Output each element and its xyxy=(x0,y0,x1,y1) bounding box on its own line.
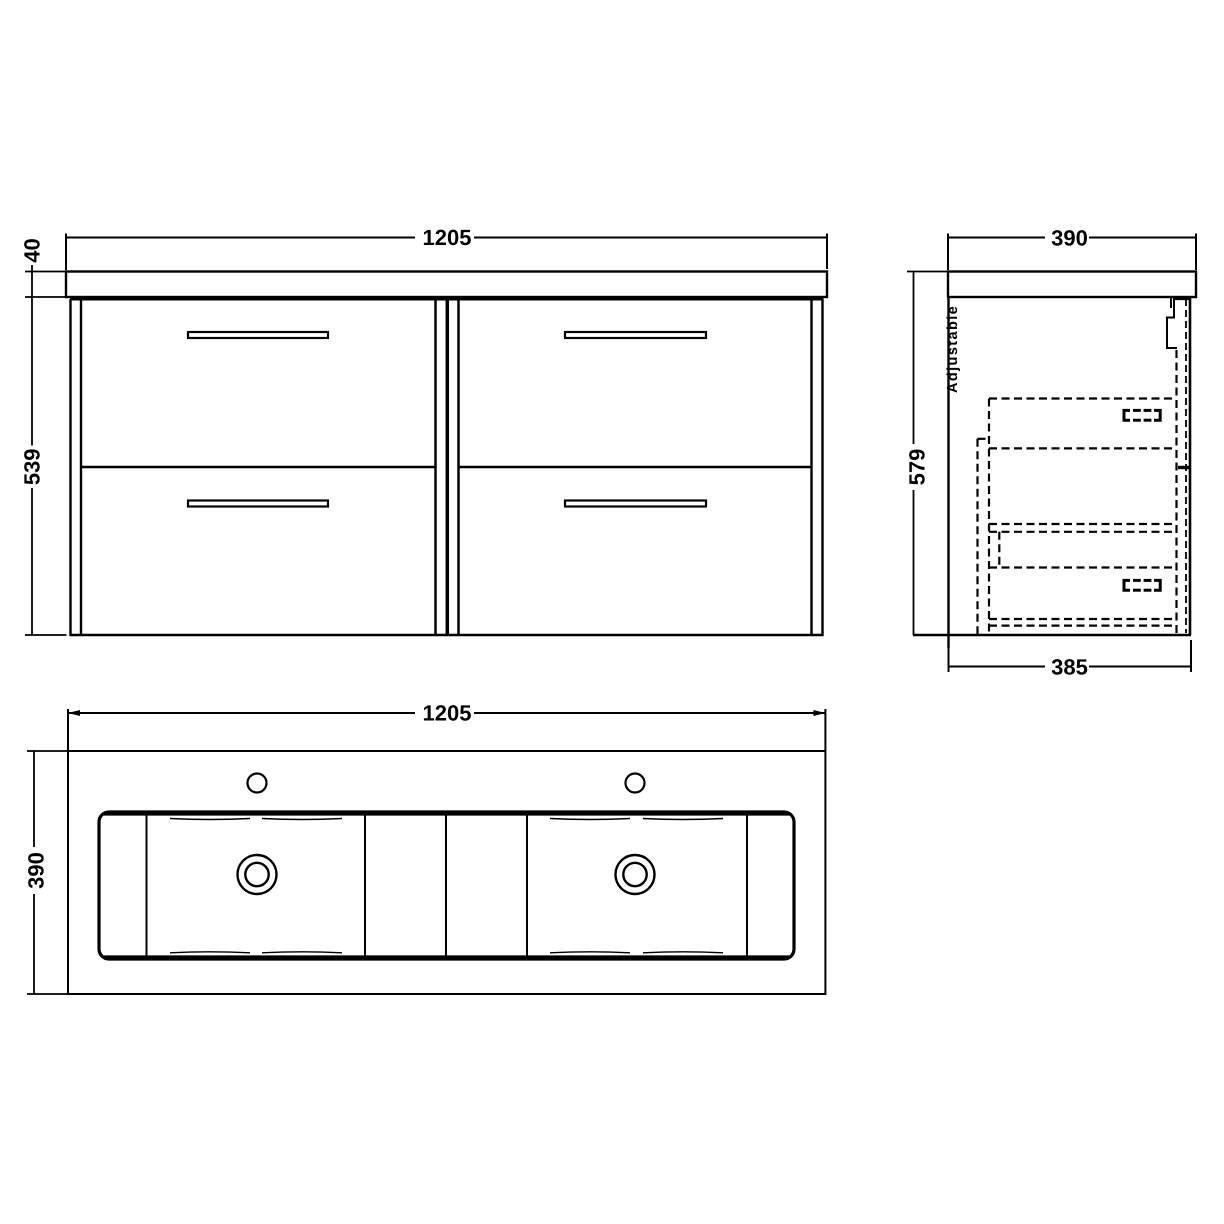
svg-text:539: 539 xyxy=(20,448,45,485)
svg-text:1205: 1205 xyxy=(423,701,472,726)
svg-text:579: 579 xyxy=(904,449,929,486)
svg-text:385: 385 xyxy=(1051,655,1088,680)
svg-text:390: 390 xyxy=(23,852,48,889)
svg-text:40: 40 xyxy=(20,238,45,262)
svg-text:390: 390 xyxy=(1051,226,1088,251)
svg-text:1205: 1205 xyxy=(423,225,472,250)
